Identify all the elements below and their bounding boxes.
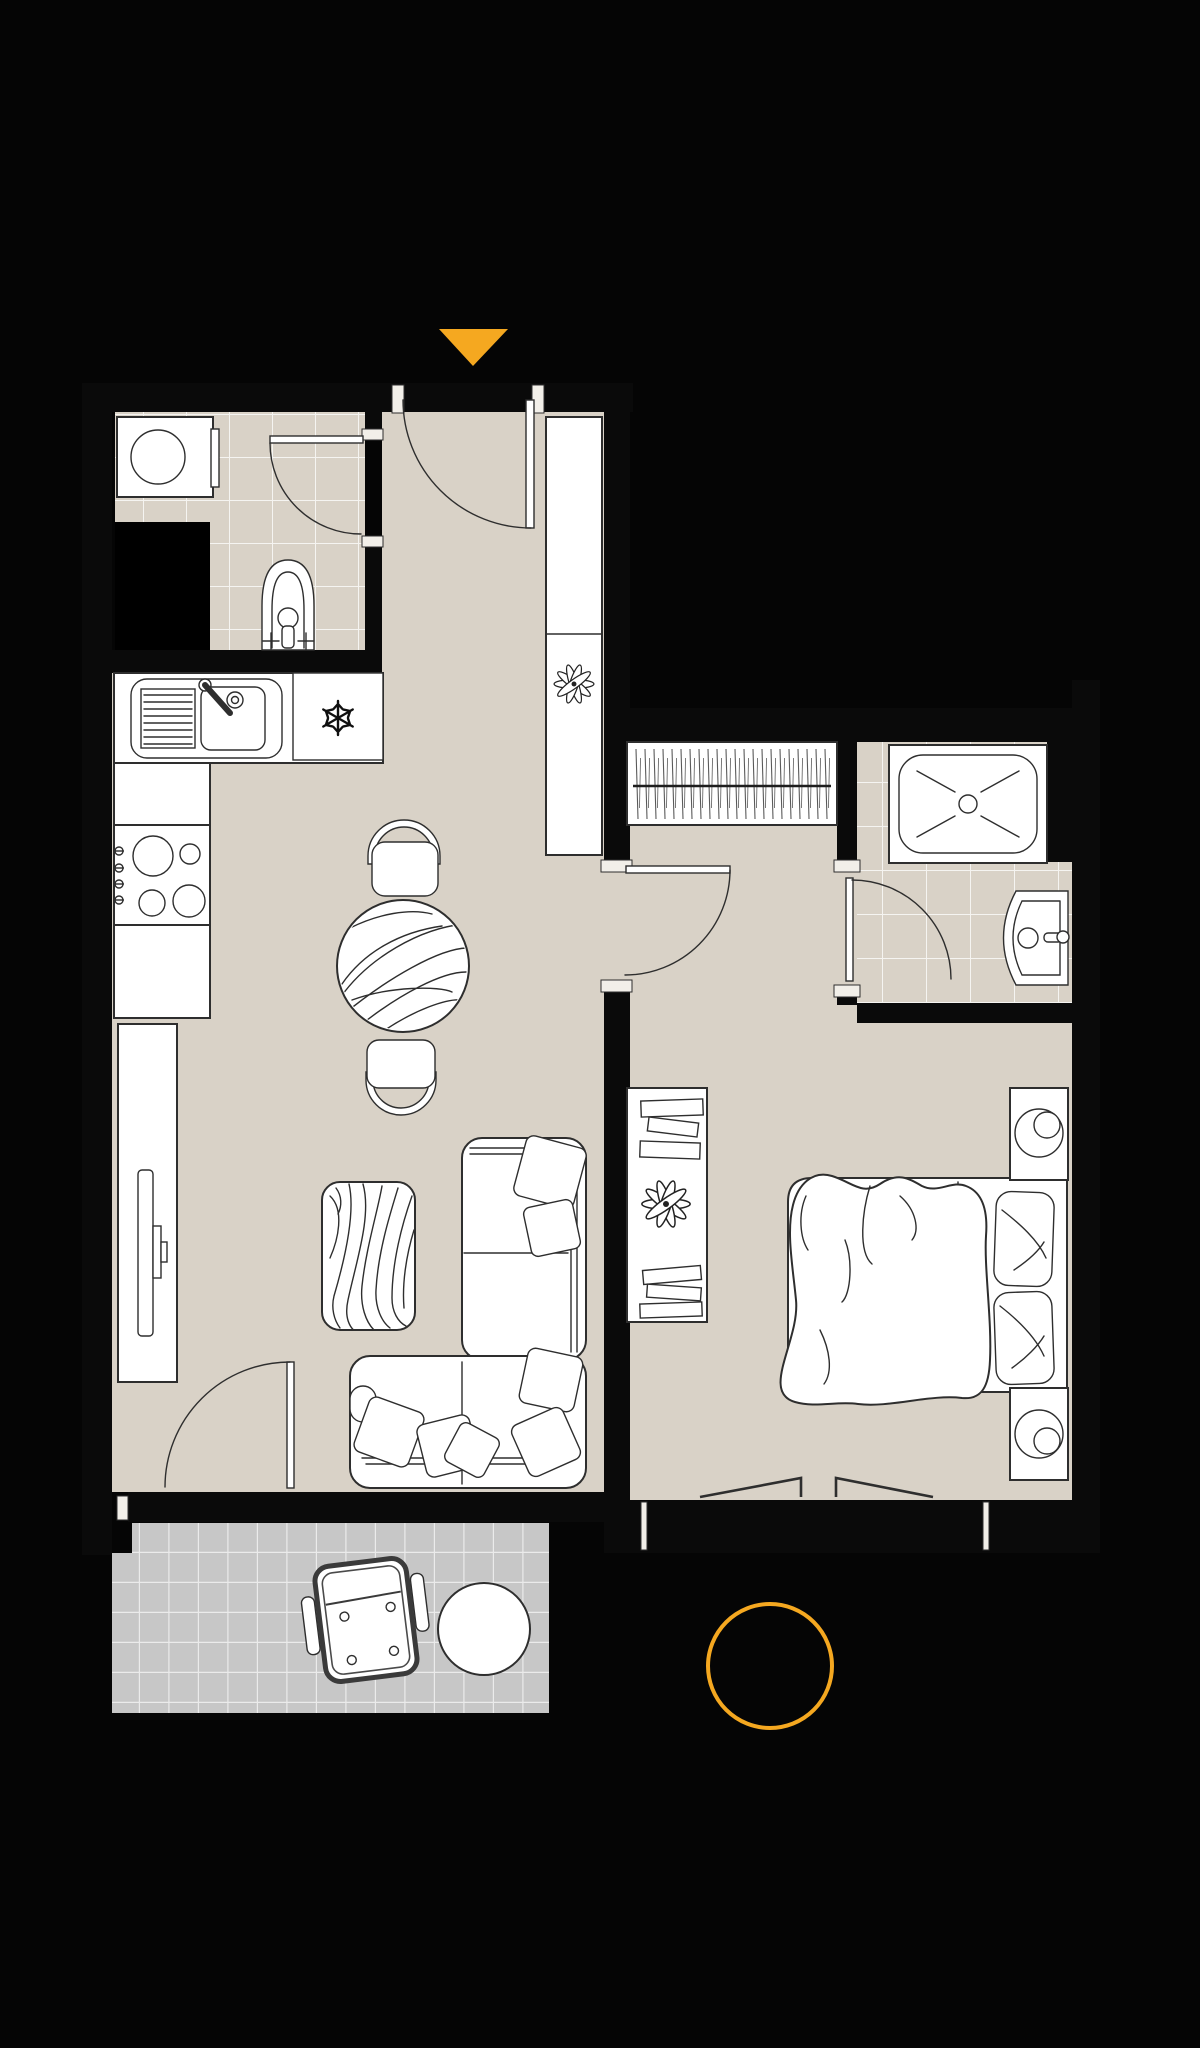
balcony-door-leaf bbox=[287, 1362, 294, 1488]
book bbox=[641, 1099, 704, 1117]
shower-drain bbox=[959, 795, 977, 813]
wall-bedroom-bottom-window bbox=[630, 1500, 1100, 1553]
wall-bedroom-top bbox=[630, 708, 1100, 742]
wall-right bbox=[1072, 680, 1100, 1553]
washing-machine bbox=[117, 417, 219, 497]
bedroom-window-jamb-left bbox=[641, 1502, 647, 1550]
stove-body bbox=[114, 825, 210, 925]
chair-seat bbox=[367, 1040, 435, 1088]
base-cabinet-lower bbox=[114, 925, 210, 1018]
wall-bathroom-bottom bbox=[82, 650, 382, 673]
tv-screen bbox=[138, 1170, 153, 1336]
tv-area bbox=[118, 1024, 177, 1382]
book bbox=[647, 1284, 702, 1301]
wall-ensuite-left-upper bbox=[837, 742, 857, 860]
wall-left bbox=[82, 383, 112, 1555]
base-cabinet-upper bbox=[114, 763, 210, 825]
double-bed bbox=[781, 1175, 1067, 1405]
bed-pillow bbox=[993, 1291, 1054, 1385]
built-in-wardrobe bbox=[627, 742, 837, 825]
pillow bbox=[522, 1198, 581, 1257]
wall-living-bottom-window bbox=[128, 1492, 630, 1522]
washbasin bbox=[1004, 891, 1070, 985]
bedroom-window-jamb-right bbox=[983, 1502, 989, 1550]
tv-stand-foot bbox=[161, 1242, 167, 1262]
chair-seat bbox=[372, 842, 438, 896]
balcony-side-table bbox=[438, 1583, 530, 1675]
floor-plan-stage bbox=[0, 0, 1200, 2048]
ensuite-door-jamb-bottom bbox=[834, 985, 860, 997]
wall-ensuite-bottom bbox=[857, 1003, 1072, 1023]
bedroom-door-leaf bbox=[626, 866, 730, 873]
wall-bathroom-right-lower bbox=[365, 547, 382, 650]
wall-top bbox=[82, 383, 633, 412]
book bbox=[640, 1141, 701, 1159]
bedroom-door-jamb-bottom bbox=[601, 980, 632, 992]
kitchen-sink bbox=[131, 679, 282, 758]
nightstand-bottom bbox=[1010, 1388, 1068, 1480]
toilet bbox=[262, 560, 314, 650]
bathroom-door-leaf bbox=[270, 436, 363, 443]
zebra-rug bbox=[322, 1182, 415, 1332]
shower bbox=[889, 745, 1047, 863]
bed-duvet bbox=[781, 1175, 991, 1405]
pillow bbox=[518, 1347, 584, 1413]
entrance-door-leaf bbox=[526, 400, 534, 528]
hall-cabinet bbox=[546, 417, 602, 855]
wall-ensuite-left-lower bbox=[837, 997, 857, 1005]
floor-plan-canvas bbox=[0, 0, 1200, 2048]
wardrobe-clothes-hatch bbox=[633, 748, 831, 819]
ensuite-door-leaf bbox=[846, 878, 853, 981]
hall-cabinet-body bbox=[546, 417, 602, 855]
bed-pillow bbox=[993, 1191, 1054, 1287]
tv-stand bbox=[153, 1226, 161, 1278]
entrance-jamb-left bbox=[392, 385, 404, 413]
wall-shower-side bbox=[1047, 742, 1072, 862]
wall-bathroom-right-upper bbox=[365, 412, 382, 429]
chair-frame bbox=[313, 1557, 418, 1683]
toilet-flush-stem bbox=[282, 626, 294, 648]
washbasin-lever-knob bbox=[1057, 931, 1069, 943]
nightstand-top bbox=[1010, 1088, 1068, 1180]
bathroom-door-jamb-top bbox=[362, 429, 383, 440]
balcony-door-jamb bbox=[117, 1496, 128, 1520]
ensuite-door-jamb-top bbox=[834, 860, 860, 872]
toilet-flush-knob bbox=[278, 608, 298, 628]
washing-machine-door-tab bbox=[211, 429, 219, 487]
shelf-unit bbox=[627, 1088, 707, 1322]
lamp-shade bbox=[1034, 1112, 1060, 1138]
stove bbox=[114, 825, 210, 925]
lamp-shade bbox=[1034, 1428, 1060, 1454]
bathroom-door-jamb-bottom bbox=[362, 536, 383, 547]
shaft-niche bbox=[115, 522, 210, 650]
sink-drainboard bbox=[141, 689, 195, 748]
screenshot-root: { "document": { "kind": "apartment-floor… bbox=[0, 0, 1200, 2048]
book bbox=[640, 1302, 702, 1318]
